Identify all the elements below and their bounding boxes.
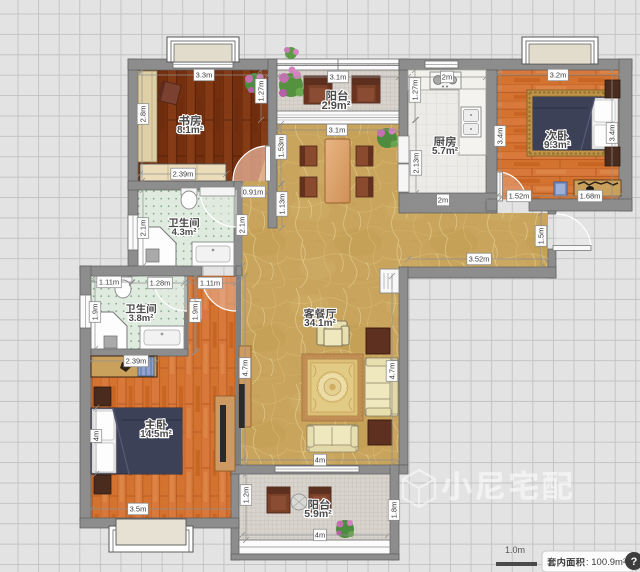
svg-text:3.8m²: 3.8m² — [129, 313, 154, 324]
svg-text:3.2m: 3.2m — [550, 71, 567, 80]
svg-text:1.27m: 1.27m — [411, 80, 420, 101]
svg-text:1.5m: 1.5m — [537, 228, 546, 245]
svg-text:2m: 2m — [442, 73, 452, 82]
svg-text:1.11m: 1.11m — [99, 278, 119, 287]
svg-text:2.1m: 2.1m — [139, 220, 148, 237]
svg-text:34.1m²: 34.1m² — [304, 318, 336, 329]
svg-text:1.53m: 1.53m — [277, 137, 286, 158]
svg-text:2.9m²: 2.9m² — [322, 100, 351, 112]
svg-text:1.9m: 1.9m — [91, 304, 100, 321]
svg-text:1.9m: 1.9m — [191, 304, 200, 321]
svg-text:1.2m: 1.2m — [242, 487, 251, 504]
svg-text:4m: 4m — [92, 431, 101, 441]
svg-text:3.3m: 3.3m — [196, 71, 213, 80]
svg-text:3.4m: 3.4m — [608, 125, 617, 142]
svg-text:1.52m: 1.52m — [509, 192, 530, 201]
svg-text:3.1m: 3.1m — [330, 73, 347, 82]
svg-text:5.7m²: 5.7m² — [432, 146, 459, 157]
svg-text:4.7m: 4.7m — [388, 363, 397, 380]
svg-text:2.13m: 2.13m — [412, 153, 421, 174]
svg-text:9.3m²: 9.3m² — [544, 140, 571, 151]
svg-text:3.1m: 3.1m — [329, 126, 346, 135]
svg-text:0.91m: 0.91m — [243, 188, 264, 197]
svg-text:4m: 4m — [315, 456, 325, 465]
svg-text:: 100.9m²: : 100.9m² — [586, 557, 626, 568]
svg-text:1.27m: 1.27m — [257, 81, 266, 102]
svg-text:1.13m: 1.13m — [278, 194, 287, 215]
svg-text:3.52m: 3.52m — [469, 255, 490, 264]
svg-text:4m: 4m — [315, 531, 325, 540]
svg-text:2m: 2m — [438, 196, 448, 205]
svg-text:3.4m: 3.4m — [496, 128, 505, 145]
svg-text:4.7m: 4.7m — [241, 360, 250, 377]
svg-text:1.68m: 1.68m — [580, 192, 601, 201]
svg-text:3.5m: 3.5m — [130, 505, 147, 514]
svg-text:2.39m: 2.39m — [126, 357, 147, 366]
svg-text:2.1m: 2.1m — [238, 217, 247, 234]
svg-text:2.8m: 2.8m — [139, 106, 148, 123]
svg-text:1.28m: 1.28m — [150, 279, 171, 288]
svg-text:4.3m²: 4.3m² — [172, 227, 197, 238]
svg-text:1.8m: 1.8m — [390, 502, 399, 519]
svg-text:1.11m: 1.11m — [200, 279, 220, 288]
svg-text:8.1m²: 8.1m² — [177, 125, 204, 136]
svg-text:2.39m: 2.39m — [173, 170, 194, 179]
svg-text:5.9m²: 5.9m² — [304, 508, 332, 520]
svg-text:14.5m²: 14.5m² — [140, 429, 172, 440]
svg-text:1.0m: 1.0m — [505, 545, 525, 555]
svg-text:?: ? — [631, 556, 638, 568]
